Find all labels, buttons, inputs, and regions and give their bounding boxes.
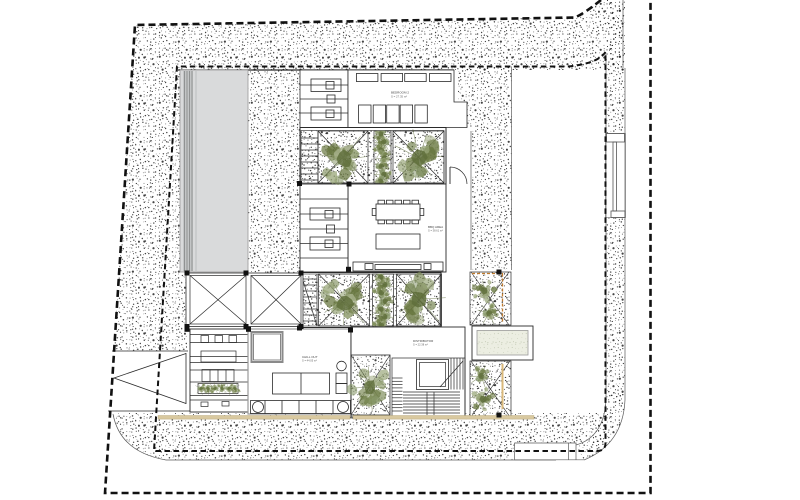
svg-text:BBQ AREA: BBQ AREA: [428, 225, 443, 229]
svg-text:DISTRIBUTOR: DISTRIBUTOR: [413, 339, 434, 343]
svg-text:S = 44.05 m²: S = 44.05 m²: [302, 359, 317, 363]
svg-text:S = 38.61 m²: S = 38.61 m²: [428, 229, 443, 233]
svg-text:S = 27.35 m²: S = 27.35 m²: [391, 95, 407, 99]
svg-text:CHILL OUT: CHILL OUT: [302, 355, 318, 359]
svg-text:..............................: ..................................: [258, 416, 287, 420]
svg-text:S = 22.38 m²: S = 22.38 m²: [413, 343, 428, 347]
